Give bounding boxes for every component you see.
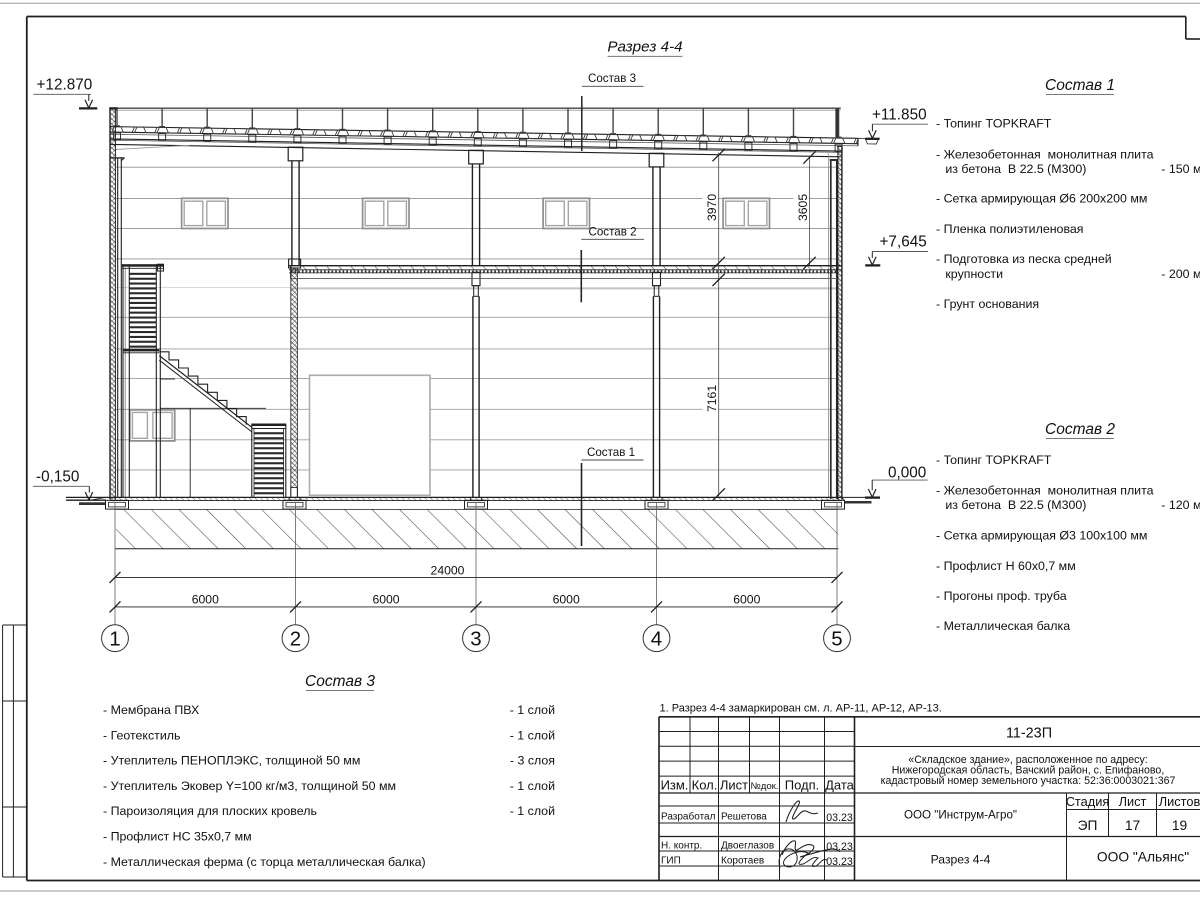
svg-text:Разрез 4-4: Разрез 4-4 <box>931 853 991 867</box>
svg-text:Лист: Лист <box>1119 794 1147 809</box>
svg-text:- Железобетонная монолитная п: - Железобетонная монолитная плита <box>936 147 1154 161</box>
svg-text:ООО "Альянс": ООО "Альянс" <box>1097 850 1189 865</box>
svg-text:+7,645: +7,645 <box>880 233 927 250</box>
svg-text:- Железобетонная монолитная п: - Железобетонная монолитная плита <box>936 483 1154 497</box>
svg-text:- Пленка полиэтиленовая: - Пленка полиэтиленовая <box>936 222 1084 236</box>
svg-text:-0,150: -0,150 <box>36 468 79 485</box>
svg-text:3: 3 <box>470 628 481 651</box>
svg-text:1. Разрез 4-4 замаркирован см.: 1. Разрез 4-4 замаркирован см. л. АР-11,… <box>660 703 942 715</box>
svg-text:- 1 слой: - 1 слой <box>510 779 555 793</box>
svg-text:Разрез 4-4: Разрез 4-4 <box>607 39 682 56</box>
svg-text:Изм.: Изм. <box>661 778 689 793</box>
svg-text:- Топинг TOPKRAFT: - Топинг TOPKRAFT <box>936 117 1052 131</box>
svg-text:- 1 слой: - 1 слой <box>510 728 555 742</box>
svg-text:6000: 6000 <box>733 592 760 606</box>
svg-text:из бетона В 22.5 (М300): из бетона В 22.5 (М300) <box>945 498 1086 512</box>
svg-text:- Прогоны проф. труба: - Прогоны проф. труба <box>936 589 1067 603</box>
svg-text:6000: 6000 <box>192 592 219 606</box>
svg-text:Коротаев: Коротаев <box>721 856 764 867</box>
svg-text:+12.870: +12.870 <box>37 77 93 94</box>
svg-text:- Мембрана ПВХ: - Мембрана ПВХ <box>103 703 199 717</box>
svg-text:- Профлист Н 60х0,7 мм: - Профлист Н 60х0,7 мм <box>936 559 1076 573</box>
svg-text:Состав 2: Состав 2 <box>1045 421 1115 438</box>
svg-text:03.23: 03.23 <box>826 856 853 868</box>
svg-text:- Топинг TOPKRAFT: - Топинг TOPKRAFT <box>936 453 1052 467</box>
svg-text:Подп.: Подп. <box>785 778 820 793</box>
svg-text:- 150 мм: - 150 мм <box>1161 162 1200 176</box>
svg-text:- 1 слой: - 1 слой <box>510 703 555 717</box>
svg-text:4: 4 <box>651 628 662 651</box>
svg-text:Состав 3: Состав 3 <box>305 673 375 690</box>
svg-text:11-23П: 11-23П <box>1006 726 1052 742</box>
svg-text:Разработал: Разработал <box>661 811 716 823</box>
svg-text:ГИП: ГИП <box>661 856 681 867</box>
svg-text:Состав 3: Состав 3 <box>588 72 636 85</box>
svg-text:- Подготовка из песка средней: - Подготовка из песка средней <box>936 252 1112 266</box>
svg-text:Состав 2: Состав 2 <box>588 226 636 239</box>
svg-text:Состав 1: Состав 1 <box>587 446 635 459</box>
svg-text:03.23: 03.23 <box>826 812 853 824</box>
svg-text:- Пароизоляция для плоских кро: - Пароизоляция для плоских кровель <box>103 804 317 818</box>
svg-text:6000: 6000 <box>372 592 399 606</box>
svg-text:3605: 3605 <box>796 194 810 221</box>
svg-text:Листов: Листов <box>1159 794 1200 809</box>
svg-text:Лист: Лист <box>720 778 748 793</box>
svg-text:ООО "Инструм-Агро": ООО "Инструм-Агро" <box>904 809 1017 822</box>
svg-text:- Сетка армирующая Ø3 100х100: - Сетка армирующая Ø3 100х100 мм <box>936 528 1147 542</box>
svg-text:Н. контр.: Н. контр. <box>661 841 702 852</box>
svg-text:3970: 3970 <box>705 194 719 221</box>
svg-text:кадастровый номер земельного у: кадастровый номер земельного участка: 52… <box>881 775 1176 787</box>
svg-text:17: 17 <box>1125 818 1140 833</box>
svg-text:- Сетка армирующая Ø6 200х200: - Сетка армирующая Ø6 200х200 мм <box>936 192 1147 206</box>
svg-text:+11.850: +11.850 <box>872 107 927 124</box>
svg-text:Состав 1: Состав 1 <box>1045 77 1115 94</box>
svg-text:1: 1 <box>109 628 120 651</box>
svg-text:- Геотекстиль: - Геотекстиль <box>103 728 180 742</box>
svg-text:19: 19 <box>1172 818 1188 833</box>
svg-text:- 200 мм: - 200 мм <box>1161 267 1200 281</box>
svg-text:из бетона В 22.5 (М300): из бетона В 22.5 (М300) <box>945 162 1086 176</box>
svg-text:2: 2 <box>290 628 301 651</box>
svg-text:Решетова: Решетова <box>721 812 767 823</box>
svg-text:ЭП: ЭП <box>1078 818 1098 833</box>
svg-text:- Утеплитель ПЕНОПЛЭКС, толщин: - Утеплитель ПЕНОПЛЭКС, толщиной 50 мм <box>103 754 360 768</box>
svg-text:Двоеглазов: Двоеглазов <box>721 841 774 852</box>
svg-text:- Грунт основания: - Грунт основания <box>936 297 1039 311</box>
svg-text:24000: 24000 <box>431 563 465 577</box>
svg-text:- 1 слой: - 1 слой <box>510 804 555 818</box>
svg-text:- 120 мм: - 120 мм <box>1161 498 1200 512</box>
svg-text:- Металлическая ферма (с торца: - Металлическая ферма (с торца металличе… <box>103 855 426 869</box>
svg-text:№док.: №док. <box>750 781 778 792</box>
svg-text:7161: 7161 <box>705 385 719 412</box>
svg-text:6000: 6000 <box>553 592 580 606</box>
svg-text:Кол.: Кол. <box>692 778 718 793</box>
svg-text:Дата: Дата <box>825 778 855 793</box>
svg-text:крупности: крупности <box>945 267 1003 281</box>
svg-text:- 3 слоя: - 3 слоя <box>510 754 555 768</box>
svg-text:- Утеплитель Эковер Y=100 кг/м: - Утеплитель Эковер Y=100 кг/м3, толщино… <box>103 779 396 793</box>
svg-text:Стадия: Стадия <box>1066 794 1110 809</box>
svg-text:0,000: 0,000 <box>888 464 926 481</box>
svg-text:- Профлист НС 35х0,7 мм: - Профлист НС 35х0,7 мм <box>103 830 252 844</box>
svg-text:- Металлическая балка: - Металлическая балка <box>936 619 1070 633</box>
svg-text:5: 5 <box>831 628 842 651</box>
